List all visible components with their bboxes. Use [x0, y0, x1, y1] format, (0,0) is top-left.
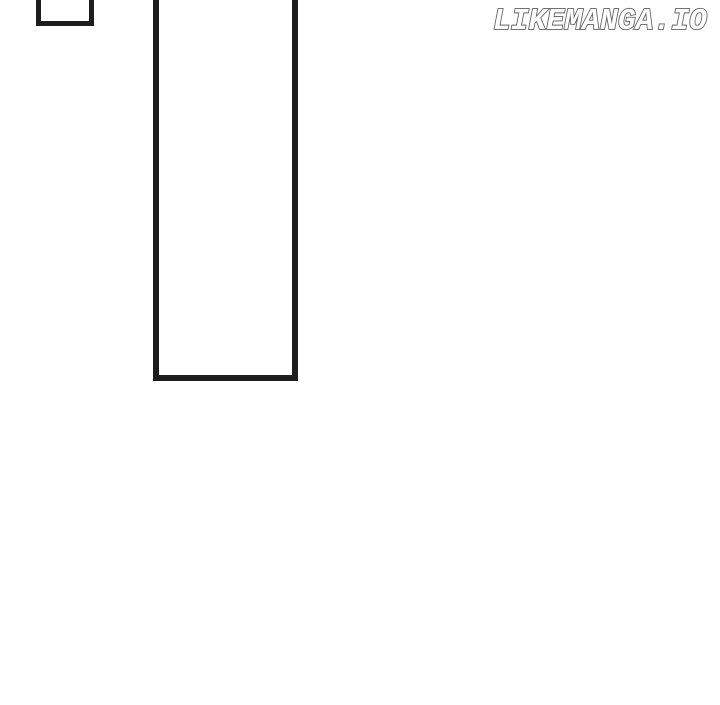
svg-text:LIKEMANGA.IO: LIKEMANGA.IO [493, 4, 707, 39]
